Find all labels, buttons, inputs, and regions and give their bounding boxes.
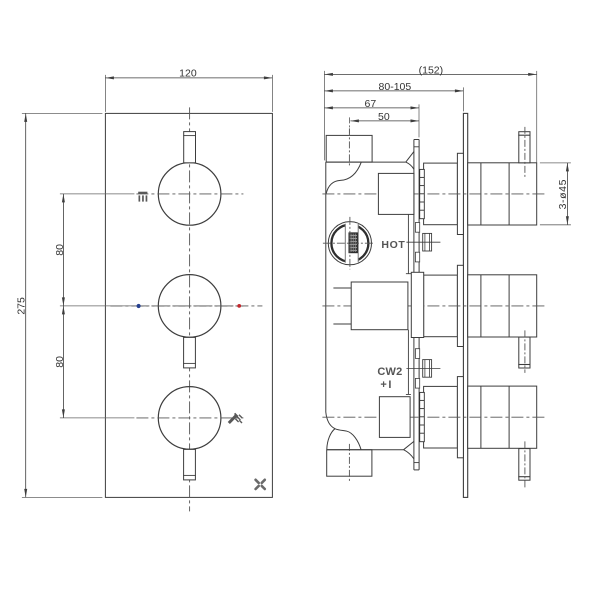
svg-text:50: 50 [378, 111, 390, 123]
svg-text:3-ø45: 3-ø45 [557, 179, 569, 209]
svg-text:HOT: HOT [381, 239, 405, 251]
svg-text:120: 120 [179, 67, 197, 79]
svg-text:(152): (152) [419, 65, 444, 77]
svg-text:67: 67 [365, 98, 377, 110]
svg-text:275: 275 [15, 297, 27, 315]
svg-text:80: 80 [54, 244, 66, 256]
svg-text:CW2: CW2 [377, 366, 402, 378]
svg-text:80-105: 80-105 [379, 81, 412, 93]
svg-text:80: 80 [54, 356, 66, 368]
svg-text:+I: +I [380, 379, 392, 391]
